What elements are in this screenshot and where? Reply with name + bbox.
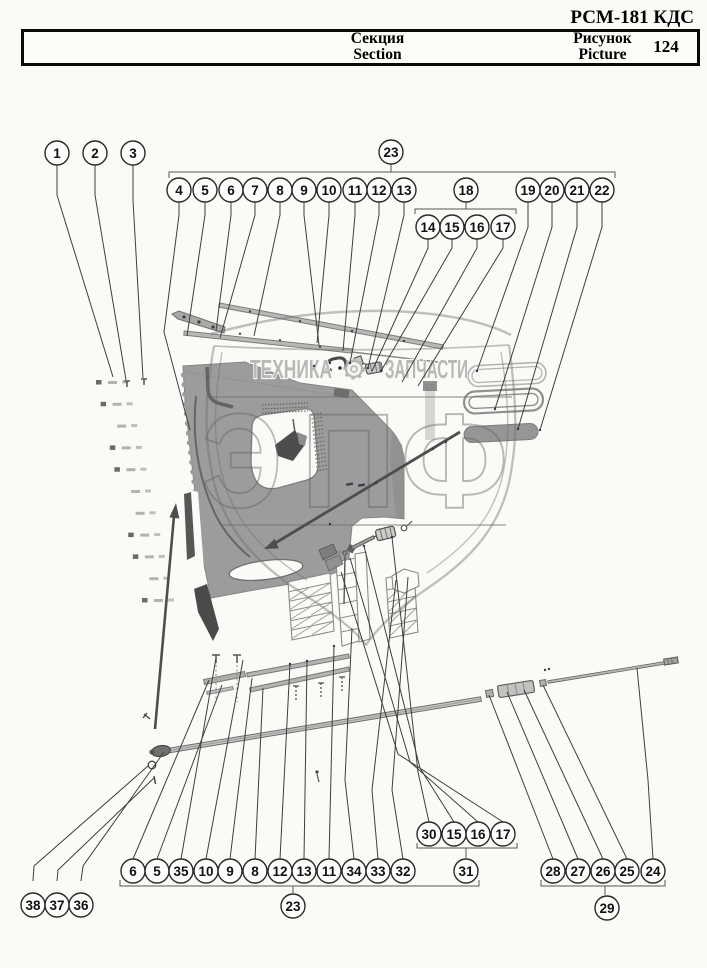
svg-text:34: 34: [346, 864, 362, 879]
svg-text:38: 38: [25, 898, 41, 913]
svg-text:18: 18: [458, 183, 474, 198]
svg-text:12: 12: [371, 183, 386, 198]
svg-text:ЗАПЧАСТИ: ЗАПЧАСТИ: [385, 354, 468, 384]
svg-text:11: 11: [322, 864, 337, 879]
svg-text:33: 33: [370, 864, 386, 879]
svg-text:П: П: [301, 387, 396, 536]
svg-text:13: 13: [396, 183, 412, 198]
svg-text:Э: Э: [202, 387, 282, 536]
svg-text:36: 36: [73, 898, 89, 913]
svg-text:17: 17: [495, 827, 510, 842]
svg-text:ТЕХНИКА: ТЕХНИКА: [250, 354, 332, 384]
svg-text:21: 21: [569, 183, 585, 198]
svg-text:1: 1: [53, 146, 61, 161]
svg-text:14: 14: [420, 220, 436, 235]
svg-text:8: 8: [251, 864, 259, 879]
svg-text:16: 16: [469, 220, 485, 235]
svg-text:16: 16: [470, 827, 486, 842]
svg-text:23: 23: [285, 899, 301, 914]
svg-text:Ф: Ф: [401, 387, 508, 536]
svg-text:12: 12: [272, 864, 287, 879]
svg-text:6: 6: [129, 864, 137, 879]
svg-text:11: 11: [348, 183, 363, 198]
svg-text:7: 7: [251, 183, 259, 198]
svg-text:19: 19: [520, 183, 535, 198]
svg-text:31: 31: [458, 864, 474, 879]
svg-text:6: 6: [227, 183, 235, 198]
svg-text:27: 27: [570, 864, 585, 879]
svg-text:20: 20: [544, 183, 559, 198]
svg-text:37: 37: [49, 898, 64, 913]
svg-text:15: 15: [446, 827, 462, 842]
svg-text:35: 35: [173, 864, 189, 879]
svg-text:13: 13: [296, 864, 312, 879]
svg-text:10: 10: [198, 864, 213, 879]
svg-text:30: 30: [421, 827, 436, 842]
svg-text:25: 25: [619, 864, 635, 879]
svg-text:10: 10: [321, 183, 336, 198]
svg-text:9: 9: [300, 183, 308, 198]
svg-text:15: 15: [444, 220, 460, 235]
svg-text:23: 23: [383, 145, 399, 160]
svg-text:4: 4: [175, 183, 183, 198]
svg-text:17: 17: [495, 220, 510, 235]
svg-text:9: 9: [226, 864, 234, 879]
svg-text:8: 8: [276, 183, 284, 198]
svg-text:32: 32: [395, 864, 410, 879]
svg-text:26: 26: [595, 864, 611, 879]
svg-text:5: 5: [201, 183, 209, 198]
svg-text:5: 5: [153, 864, 161, 879]
svg-text:29: 29: [599, 901, 614, 916]
svg-text:2: 2: [91, 146, 99, 161]
svg-text:28: 28: [545, 864, 561, 879]
svg-text:22: 22: [594, 183, 609, 198]
svg-text:3: 3: [129, 146, 137, 161]
svg-text:24: 24: [645, 864, 661, 879]
